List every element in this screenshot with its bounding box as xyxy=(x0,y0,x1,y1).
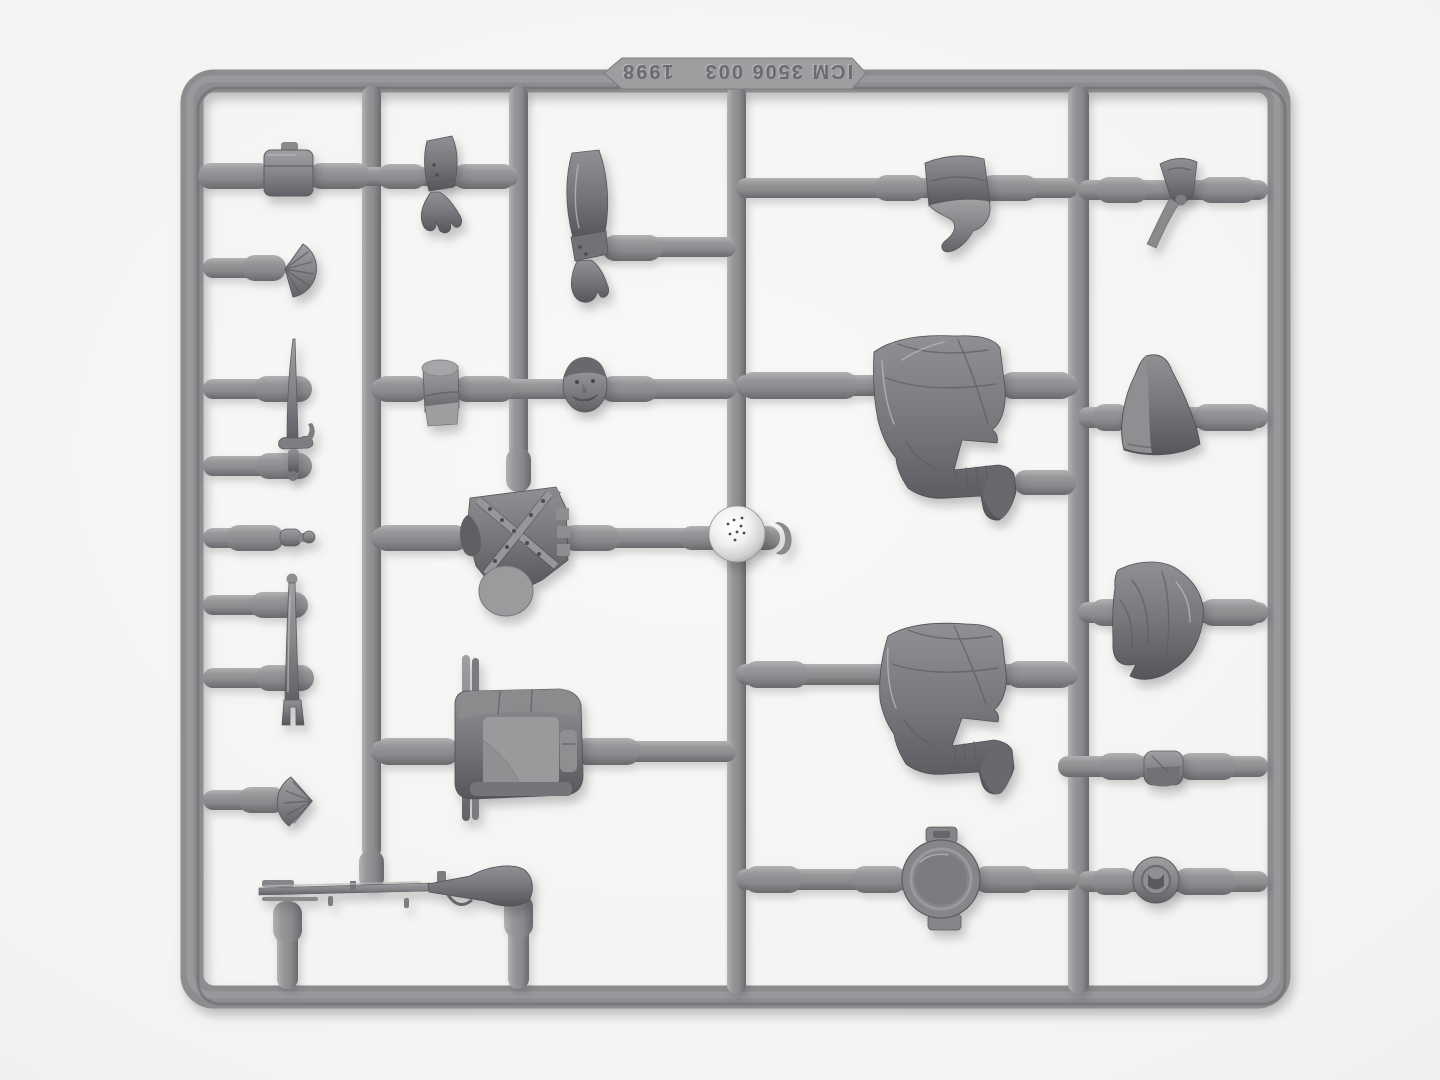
runner-vertical-b xyxy=(509,86,528,458)
part-belt-pouch xyxy=(1144,751,1183,787)
part-shako-cover xyxy=(1122,355,1200,455)
part-small-fitting xyxy=(280,529,315,546)
part-cartridge-pouch xyxy=(264,142,313,196)
part-torso xyxy=(460,487,570,616)
part-streamer-cap xyxy=(1147,158,1197,248)
part-musket xyxy=(259,866,532,908)
part-canteen xyxy=(902,827,980,930)
part-fan-plume xyxy=(285,244,317,297)
mold-text: ICM 3506 0031998 xyxy=(621,60,853,82)
part-head xyxy=(563,357,607,412)
part-shako xyxy=(422,360,459,426)
part-hood-drape xyxy=(1113,562,1204,679)
part-shell-plume xyxy=(277,777,312,826)
part-round-ball xyxy=(709,506,765,562)
part-cockade-disc xyxy=(1133,857,1179,903)
part-legs-kneeling-a xyxy=(874,336,1017,520)
part-legs-kneeling-b xyxy=(880,623,1014,794)
sprue-photo: ICM 3506 0031998 ICM 3506 0031998 xyxy=(0,0,1440,1080)
part-forage-cap xyxy=(925,156,990,252)
photo-of-model-kit-sprue: ICM 3506 0031998 ICM 3506 0031998 xyxy=(0,0,1440,1080)
mold-text-plate: ICM 3506 0031998 ICM 3506 0031998 xyxy=(604,58,866,89)
part-straight-arm xyxy=(567,150,609,302)
runner-vertical-d xyxy=(1068,86,1089,994)
part-backpack xyxy=(455,655,583,821)
